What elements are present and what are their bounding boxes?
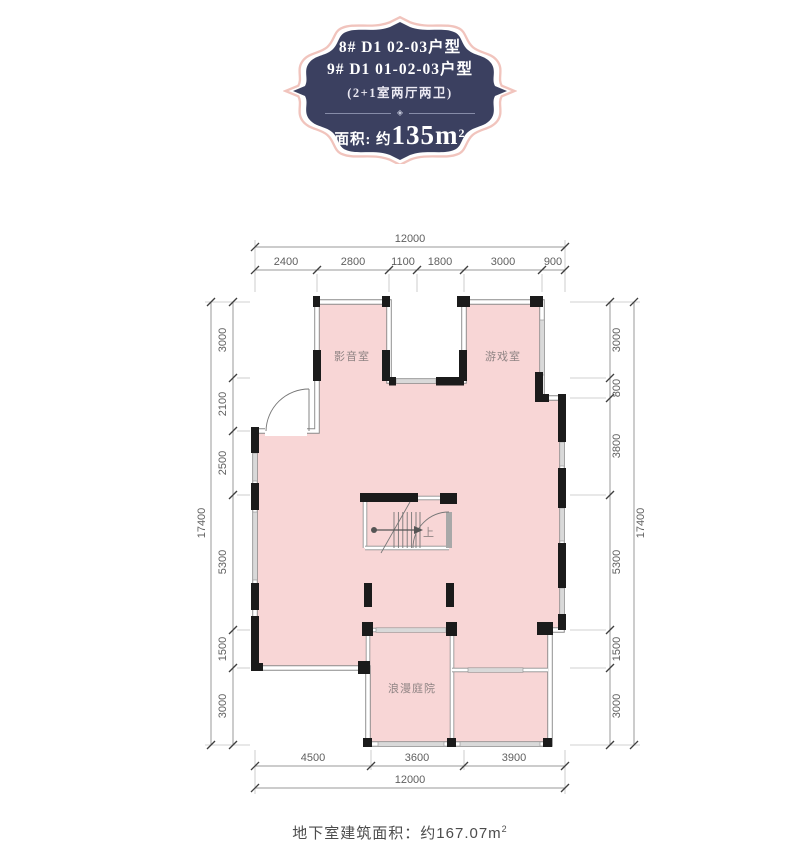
room-label-game: 游戏室 bbox=[485, 349, 521, 363]
dim-left-seg: 2500 bbox=[217, 451, 229, 475]
dim-bottom-seg: 4500 bbox=[301, 752, 325, 764]
dim-right-seg: 800 bbox=[611, 379, 623, 397]
title-badge: 8# D1 02-03户型 9# D1 01-02-03户型 (2+1室两厅两卫… bbox=[283, 12, 517, 164]
dim-top-seg: 2800 bbox=[341, 256, 365, 268]
dim-top-seg: 900 bbox=[544, 256, 562, 268]
dims-left: 3000 2100 2500 5300 1500 3000 17400 bbox=[196, 298, 250, 749]
badge-content: 8# D1 02-03户型 9# D1 01-02-03户型 (2+1室两厅两卫… bbox=[283, 12, 517, 151]
divider-bar bbox=[409, 113, 475, 114]
dim-left-seg: 2100 bbox=[217, 392, 229, 416]
dim-right-seg: 3000 bbox=[611, 694, 623, 718]
caption-text: 地下室建筑面积：约167.07m bbox=[292, 825, 501, 842]
dim-right-seg: 3000 bbox=[611, 328, 623, 352]
area-prefix: 面积: 约 bbox=[335, 132, 392, 148]
dims-bottom: 4500 3600 3900 12000 bbox=[251, 750, 569, 794]
badge-room-spec: (2+1室两厅两卫) bbox=[283, 82, 517, 101]
dim-left-total: 17400 bbox=[196, 508, 208, 539]
badge-unit-line-2: 9# D1 01-02-03户型 bbox=[283, 59, 517, 81]
dims-top: 12000 2400 2800 1100 1800 3000 900 bbox=[251, 233, 569, 292]
entry-door-opening bbox=[265, 426, 307, 436]
badge-divider: ◈ bbox=[325, 109, 475, 117]
floor-area bbox=[255, 302, 562, 744]
door-jamb bbox=[446, 512, 452, 548]
dim-right-seg: 3800 bbox=[611, 434, 623, 458]
dim-top-seg: 1800 bbox=[428, 256, 452, 268]
dim-bottom-seg: 3900 bbox=[502, 752, 526, 764]
dim-right-seg: 5300 bbox=[611, 550, 623, 574]
dim-left-seg: 3000 bbox=[217, 328, 229, 352]
room-label-courtyard: 浪漫庭院 bbox=[388, 681, 436, 695]
dim-bottom-total: 12000 bbox=[395, 774, 426, 786]
caption: 地下室建筑面积：约167.07m2 bbox=[0, 822, 800, 843]
dim-left-seg: 3000 bbox=[217, 694, 229, 718]
dim-left-seg: 1500 bbox=[217, 637, 229, 661]
caption-superscript: 2 bbox=[502, 824, 508, 834]
dim-right-seg: 1500 bbox=[611, 637, 623, 661]
dim-top-seg: 2400 bbox=[274, 256, 298, 268]
area-value: 135m bbox=[391, 120, 458, 150]
area-superscript: 2 bbox=[458, 126, 465, 140]
dim-right-total: 17400 bbox=[635, 508, 647, 539]
badge-area-line: 面积: 约135m2 bbox=[283, 120, 517, 151]
stairs-up-label: 上 bbox=[423, 526, 435, 539]
dim-top-seg: 3000 bbox=[491, 256, 515, 268]
dim-left-seg: 5300 bbox=[217, 550, 229, 574]
entry-door bbox=[266, 389, 309, 431]
badge-unit-line-1: 8# D1 02-03户型 bbox=[283, 37, 517, 59]
divider-bar bbox=[325, 113, 391, 114]
room-label-media: 影音室 bbox=[334, 349, 370, 363]
dim-top-total: 12000 bbox=[395, 233, 426, 245]
dim-top-seg: 1100 bbox=[391, 256, 415, 268]
dim-bottom-seg: 3600 bbox=[405, 752, 429, 764]
floor-plan-page: 上 影音室 游戏室 浪漫庭院 12000 2400 2800 1100 1800 bbox=[0, 0, 800, 868]
dims-right: 3000 800 3800 5300 1500 3000 17400 bbox=[570, 298, 647, 749]
diamond-ornament-icon: ◈ bbox=[391, 109, 409, 117]
floor-footprint bbox=[255, 302, 562, 744]
